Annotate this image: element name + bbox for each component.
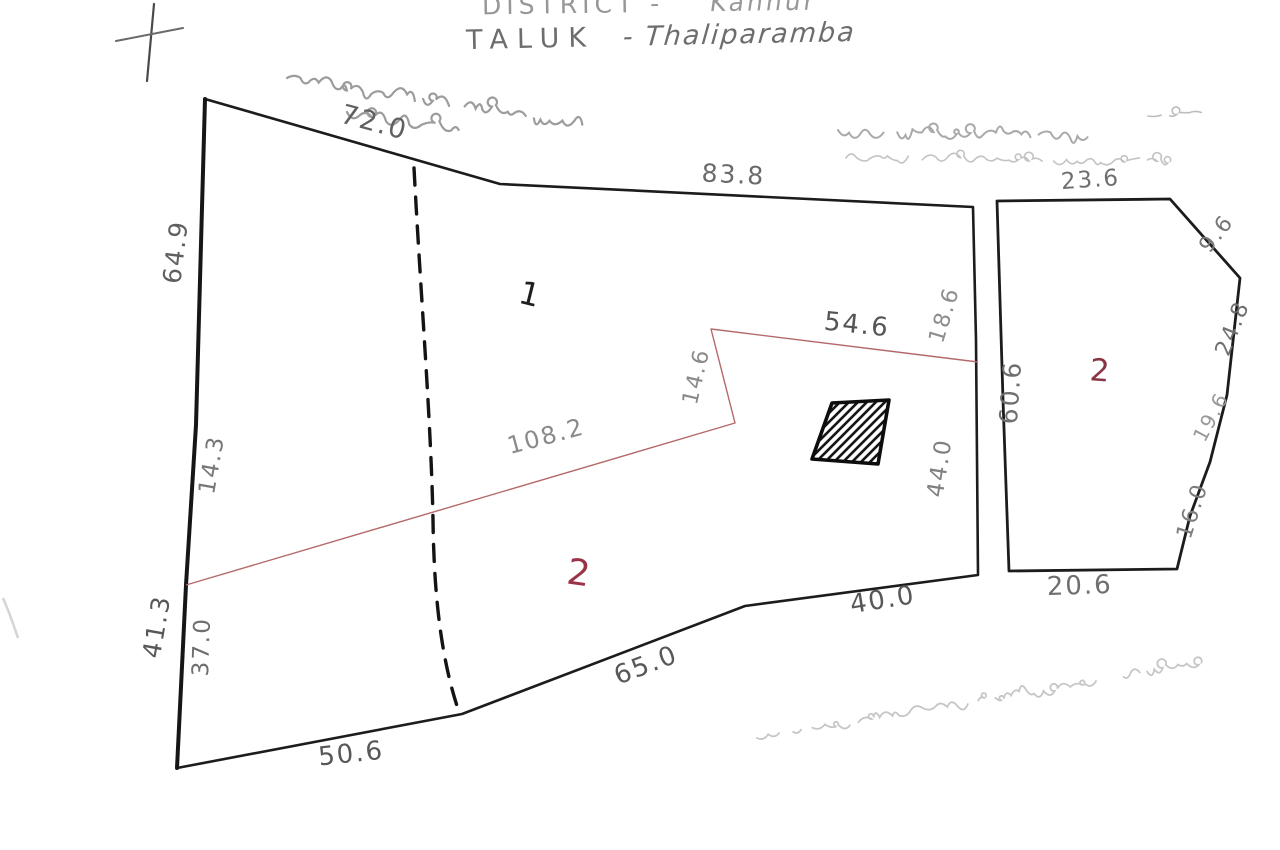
measurement-44-0: 44.0: [923, 437, 958, 500]
plot-1-left-parcel: 1: [515, 273, 546, 315]
measurement-23-6: 23.6: [1060, 165, 1121, 195]
stray-dash-top-right: [1148, 105, 1202, 118]
building-hatched: [812, 400, 889, 464]
center-dashed-line: [414, 168, 459, 712]
measurement-37-0: 37.0: [188, 617, 216, 677]
measurement-108-2: 108.2: [504, 413, 587, 460]
measurement-19-6: 19.6: [1188, 388, 1234, 446]
survey-cross-mark: [116, 4, 183, 81]
sketch-svg: 72.083.864.914.341.337.050.665.040.018.6…: [0, 0, 1280, 850]
measurement-9-6: 9.6: [1194, 210, 1239, 258]
measurement-54-6: 54.6: [823, 307, 892, 344]
malayalam-top-right-line2: [846, 149, 1171, 165]
measurement-60-6: 60.6: [994, 360, 1027, 426]
measurement-40-0: 40.0: [848, 580, 918, 620]
scan-smudge: [3, 598, 18, 638]
malayalam-top-right-line1: [838, 121, 1097, 145]
measurement-50-6: 50.6: [317, 736, 386, 773]
measurement-14-3: 14.3: [194, 433, 230, 496]
measurement-83-8: 83.8: [701, 158, 766, 190]
plot-numbers-layer: 122: [515, 273, 1113, 595]
measurement-41-3: 41.3: [137, 593, 177, 661]
measurement-24-8: 24.8: [1211, 297, 1256, 359]
plot-2-left-parcel: 2: [564, 552, 594, 596]
measurement-20-6: 20.6: [1046, 570, 1113, 602]
malayalam-top-left-line1: [286, 65, 592, 133]
measurement-14-6: 14.6: [678, 346, 715, 407]
measurement-16-0: 16.0: [1172, 480, 1213, 542]
malayalam-bottom-right: [755, 653, 1203, 744]
plot-2-right-parcel: 2: [1089, 352, 1113, 389]
measurement-65-0: 65.0: [610, 640, 682, 692]
measurement-18-6: 18.6: [924, 284, 965, 346]
survey-sketch-canvas: DISTRICT -Kannur TALUK- Thaliparamba: [0, 0, 1280, 850]
measurement-64-9: 64.9: [157, 219, 194, 286]
